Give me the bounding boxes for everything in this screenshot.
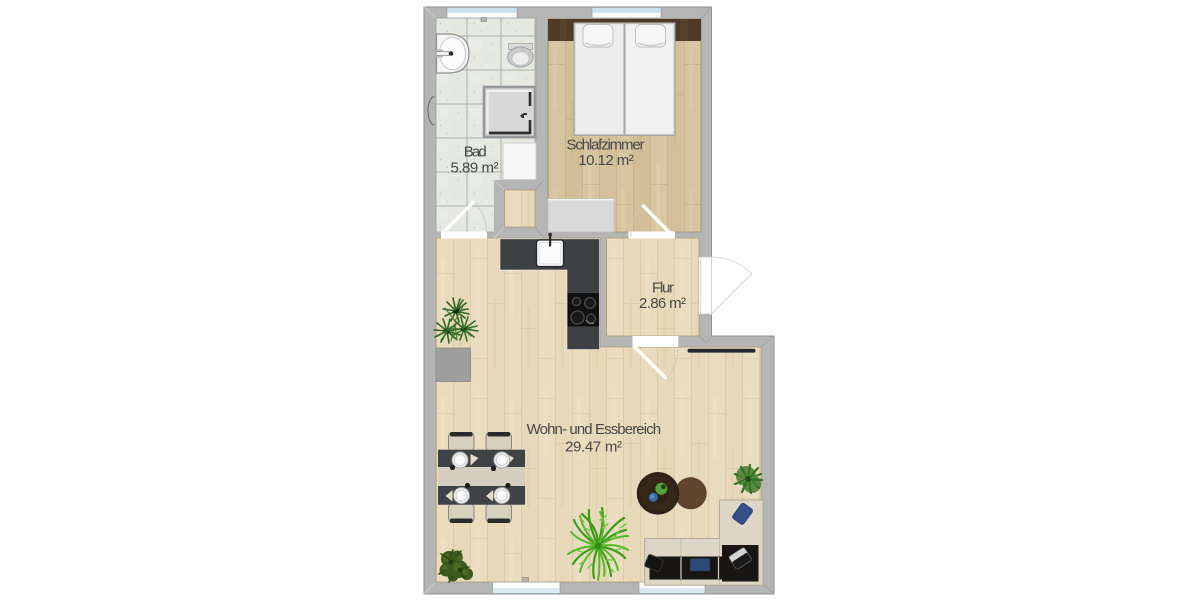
svg-text:Wohn- und Essbereich: Wohn- und Essbereich — [527, 421, 662, 438]
svg-text:5.89 m²: 5.89 m² — [451, 160, 499, 177]
svg-text:10.12 m²: 10.12 m² — [578, 152, 634, 169]
svg-text:Bad: Bad — [464, 144, 487, 161]
svg-text:Flur: Flur — [652, 280, 674, 297]
svg-text:Schlafzimmer: Schlafzimmer — [567, 137, 645, 154]
svg-text:2.86 m²: 2.86 m² — [639, 295, 686, 312]
svg-text:29.47 m²: 29.47 m² — [565, 439, 622, 456]
